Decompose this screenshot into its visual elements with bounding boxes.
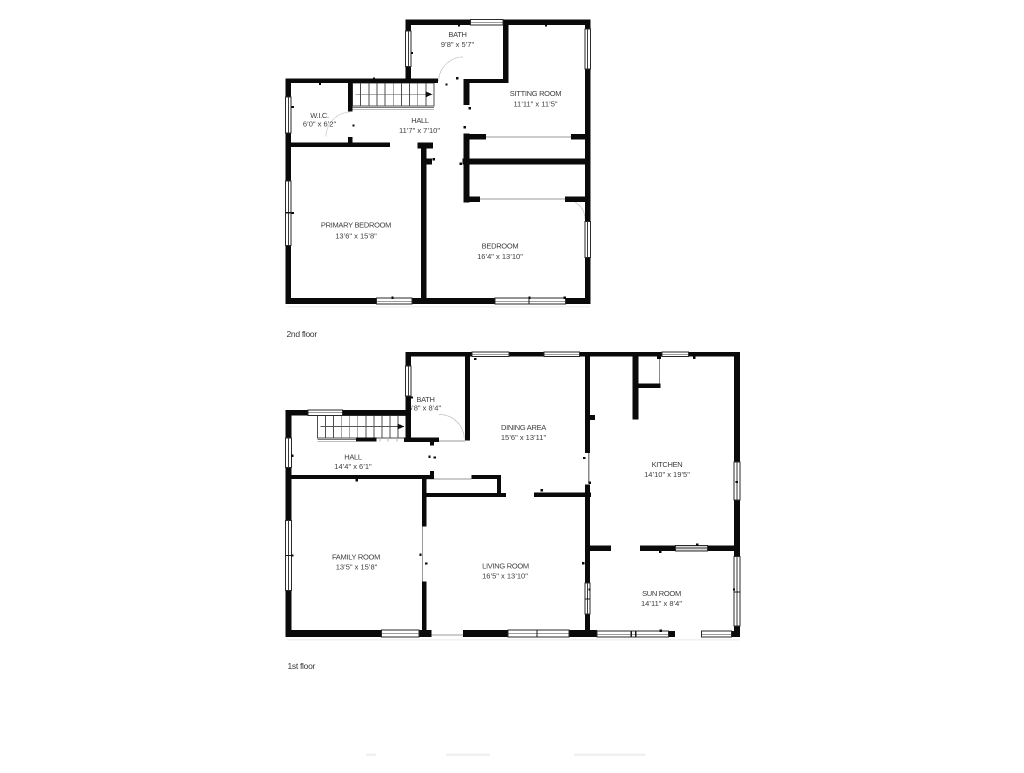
svg-text:16’5" x 13’10": 16’5" x 13’10" — [482, 572, 528, 581]
svg-text:6’8" x 8’4": 6’8" x 8’4" — [408, 404, 442, 413]
svg-text:11’11" x 11’5": 11’11" x 11’5" — [513, 99, 557, 108]
svg-text:14’10" x 19’5": 14’10" x 19’5" — [644, 470, 690, 479]
svg-text:SUN ROOM: SUN ROOM — [642, 589, 681, 598]
svg-text:HALL: HALL — [344, 453, 362, 462]
svg-text:FAMILY ROOM: FAMILY ROOM — [332, 552, 380, 561]
svg-text:BATH: BATH — [448, 30, 466, 39]
svg-text:1st floor: 1st floor — [288, 661, 316, 671]
svg-text:13’5" x 15’8": 13’5" x 15’8" — [336, 562, 378, 571]
svg-text:6’0" x 6’2": 6’0" x 6’2" — [303, 120, 337, 129]
svg-text:KITCHEN: KITCHEN — [652, 460, 683, 469]
svg-text:14’4" x 6’1": 14’4" x 6’1" — [334, 462, 372, 471]
svg-text:LIVING ROOM: LIVING ROOM — [482, 561, 529, 570]
svg-text:16’4" x 13’10": 16’4" x 13’10" — [477, 252, 523, 261]
svg-text:13’6" x 15’8": 13’6" x 15’8" — [335, 232, 377, 241]
svg-text:SITTING ROOM: SITTING ROOM — [510, 89, 561, 98]
svg-text:BEDROOM: BEDROOM — [482, 242, 519, 251]
svg-text:DINING AREA: DINING AREA — [501, 423, 546, 432]
svg-text:15’6" x 13’11": 15’6" x 13’11" — [501, 433, 547, 442]
svg-text:BATH: BATH — [416, 395, 434, 404]
svg-text:11’7" x 7’10": 11’7" x 7’10" — [399, 126, 440, 135]
svg-text:9’8" x 5’7": 9’8" x 5’7" — [441, 40, 475, 49]
svg-text:14’11" x 8’4": 14’11" x 8’4" — [641, 599, 682, 608]
svg-text:HALL: HALL — [411, 116, 429, 125]
svg-text:2nd floor: 2nd floor — [287, 329, 318, 339]
svg-text:PRIMARY BEDROOM: PRIMARY BEDROOM — [321, 221, 391, 230]
